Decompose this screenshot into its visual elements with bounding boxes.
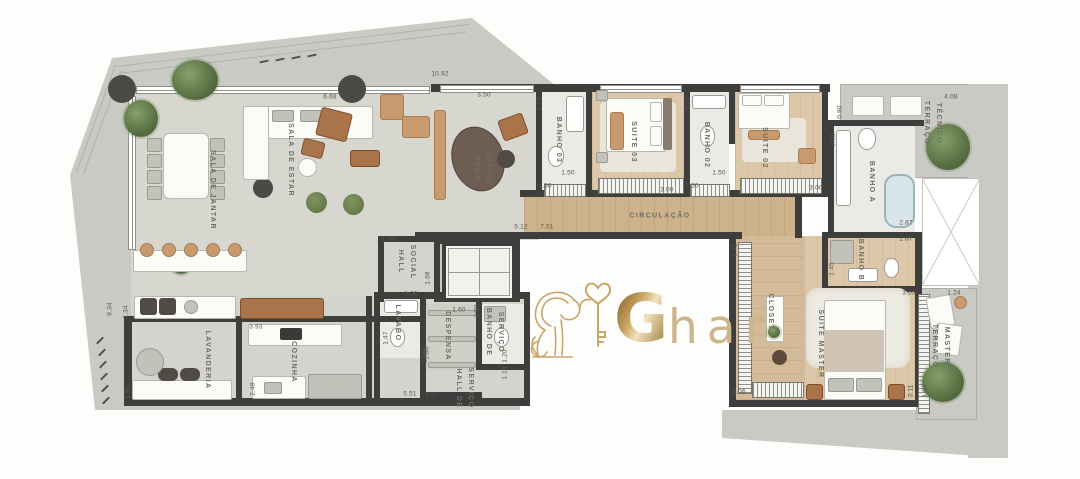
wall [729, 400, 922, 407]
pillow [764, 95, 784, 106]
dimension-label: 3.00 [660, 187, 673, 194]
plant [124, 100, 158, 137]
dimension-label: 1.45 [829, 262, 836, 275]
wall [822, 232, 828, 292]
nightstand [888, 384, 905, 400]
room-label-home-office: HOME OFFICE [470, 151, 494, 185]
wall [236, 316, 242, 404]
dimension-label: 4.08 [944, 94, 957, 101]
pillow [742, 95, 762, 106]
kitchen-sink [264, 382, 282, 394]
laundry-lower-counter [132, 380, 232, 400]
dimension-label: 2.48 [250, 382, 257, 395]
coffee-table [298, 158, 317, 177]
wall [795, 192, 802, 238]
dimension-label: 7.51 [540, 224, 553, 231]
dimension-label: 1.24 [947, 290, 960, 297]
armchair [402, 116, 430, 138]
room-label-suite-02: SUITE 02 [758, 127, 770, 169]
dimension-label: 9.34 [107, 302, 114, 315]
dimension-label: 5.41 [732, 243, 739, 256]
wall [366, 296, 372, 400]
watermark-letter-g: G [614, 286, 668, 352]
washer [140, 298, 157, 315]
vanity-banho-a [836, 130, 851, 206]
dimension-label: 1.80 [424, 346, 431, 359]
floor-plan: SALA DE JANTAR SALA DE ESTAR HOME OFFICE… [0, 0, 1080, 479]
bar-stool [184, 243, 198, 257]
window [740, 85, 820, 93]
closet-chair [772, 350, 787, 365]
ac-unit [890, 96, 922, 116]
room-label-terraco-tecnico: TERRAÇO TÉCNICO [920, 101, 944, 145]
dimension-label: 1.47 [383, 331, 390, 344]
column [108, 75, 136, 103]
room-label-circulacao: CIRCULAÇÃO [629, 213, 690, 220]
vanity-banho-03 [566, 96, 584, 132]
cooktop [280, 328, 302, 340]
toilet-banho-b [884, 258, 899, 278]
watermark-brand-suffix: har [668, 304, 773, 351]
dimension-label: 1.50 [561, 170, 574, 177]
vanity-banho-02 [692, 95, 726, 109]
bar-stool [162, 243, 176, 257]
dimension-label: 10.92 [431, 71, 448, 78]
room-label-lavanderia: LAVANDERIA [201, 331, 213, 390]
wall [828, 120, 924, 126]
dimension-label: 3.05 [902, 290, 915, 297]
room-label-cozinha: COZINHA [287, 341, 299, 383]
bed-runner [610, 112, 624, 150]
dryer [159, 298, 176, 315]
dining-chair [147, 138, 162, 152]
dimension-label: 5.51 [403, 391, 416, 398]
room-label-banho-02: BANHO 02 [700, 122, 712, 169]
watermark: G har [528, 280, 758, 366]
dimension-label: 1.60 [452, 307, 465, 314]
pillow [856, 378, 882, 392]
nightstand [596, 90, 608, 101]
watermark-key-icon [584, 280, 612, 358]
dimension-label: 3.93 [249, 324, 262, 331]
green-pouf [306, 192, 327, 213]
dining-chair [147, 186, 162, 200]
dimension-label: 1.10 [502, 366, 509, 379]
tv-console [350, 150, 380, 167]
toilet-banho-a [858, 128, 876, 150]
dimension-label: 5.12 [514, 224, 527, 231]
dimension-label: 2.97 [425, 392, 438, 399]
window [600, 85, 682, 93]
wall [520, 232, 742, 239]
headboard-suite-03 [663, 98, 672, 150]
hamper [136, 348, 164, 376]
dimension-label: 2.87 [899, 236, 912, 243]
dimension-label: 0.90 [837, 105, 844, 118]
room-label-suite-03: SUITE 03 [627, 121, 639, 163]
dimension-label: 1.88 [474, 304, 481, 317]
laundry-sink [184, 300, 198, 314]
technical-shaft [922, 178, 980, 286]
laundry-basket [180, 368, 200, 381]
room-label-terraco-master: TERRAÇO MASTER [928, 324, 952, 368]
elevator [442, 242, 516, 302]
bar-stool [228, 243, 242, 257]
dimension-label: 1.75 [381, 237, 394, 244]
dimension-label: 6.06 [732, 389, 745, 396]
column [338, 75, 366, 103]
green-pouf [343, 194, 364, 215]
dimension-label: 6.68 [323, 94, 336, 101]
pillow [650, 102, 662, 122]
room-label-suite-master: SUITE MASTER [814, 310, 826, 379]
room-label-sala-de-jantar: SALA DE JANTAR [206, 150, 218, 230]
office-chair [497, 150, 515, 168]
dimension-label: 2.72 [685, 97, 692, 110]
dining-chair [147, 154, 162, 168]
room-label-banho-03: BANHO 03 [552, 117, 564, 164]
dimension-label: 3.50 [477, 92, 490, 99]
wardrobe-closet-bottom [752, 382, 804, 398]
dimension-label: 1.34 [123, 305, 130, 318]
dimension-label: 1.50 [538, 183, 551, 190]
bed-blanket [824, 330, 884, 372]
dimension-label: 3.31 [830, 133, 837, 146]
wall [374, 292, 380, 404]
room-label-lavabo: LAVABO [391, 305, 403, 342]
dimension-label: 1.81 [125, 385, 132, 398]
armchair [380, 94, 404, 120]
room-label-banho-a: BANHO A [865, 161, 877, 203]
dimension-label: 1.68 [425, 271, 432, 284]
dimension-label: 3.00 [809, 185, 822, 192]
room-label-hall-de-servico: HALL DE SERVIÇO [452, 367, 476, 408]
dining-table [163, 133, 209, 199]
nightstand [596, 152, 608, 163]
kitchen-cabinet [240, 298, 324, 319]
dimension-label: 3.11 [908, 385, 915, 398]
plant [172, 60, 218, 100]
dimension-label: 2.72 [537, 97, 544, 110]
dimension-label: 1.20 [404, 291, 417, 298]
dimension-label: 1.20 [502, 349, 509, 362]
bar-stool [206, 243, 220, 257]
bar-stool [140, 243, 154, 257]
office-shelf [434, 110, 446, 200]
shower-banho-b [830, 240, 854, 264]
sofa-chaise [243, 106, 269, 180]
sofa-cushion [272, 110, 294, 122]
elevator-cab [448, 248, 510, 296]
dimension-label: 1.64 [922, 384, 929, 397]
dining-chair [147, 170, 162, 184]
wall [586, 84, 592, 196]
nightstand [806, 384, 823, 400]
wall [729, 84, 735, 144]
room-label-banho-b: BANHO B [854, 239, 866, 281]
pillow [650, 126, 662, 146]
dimension-label: 1.50 [685, 183, 698, 190]
fridge [308, 374, 362, 399]
room-label-hall-social: HALL SOCIAL [394, 245, 418, 280]
side-table [954, 296, 967, 309]
dimension-label: 2.87 [899, 220, 912, 227]
dimension-label: 1.50 [712, 170, 725, 177]
column [253, 178, 273, 198]
ac-unit [852, 96, 884, 116]
room-label-sala-de-estar: SALA DE ESTAR [284, 123, 296, 197]
room-label-despensa: DESPENSA [441, 311, 453, 361]
chair [798, 148, 816, 164]
pillow [828, 378, 854, 392]
